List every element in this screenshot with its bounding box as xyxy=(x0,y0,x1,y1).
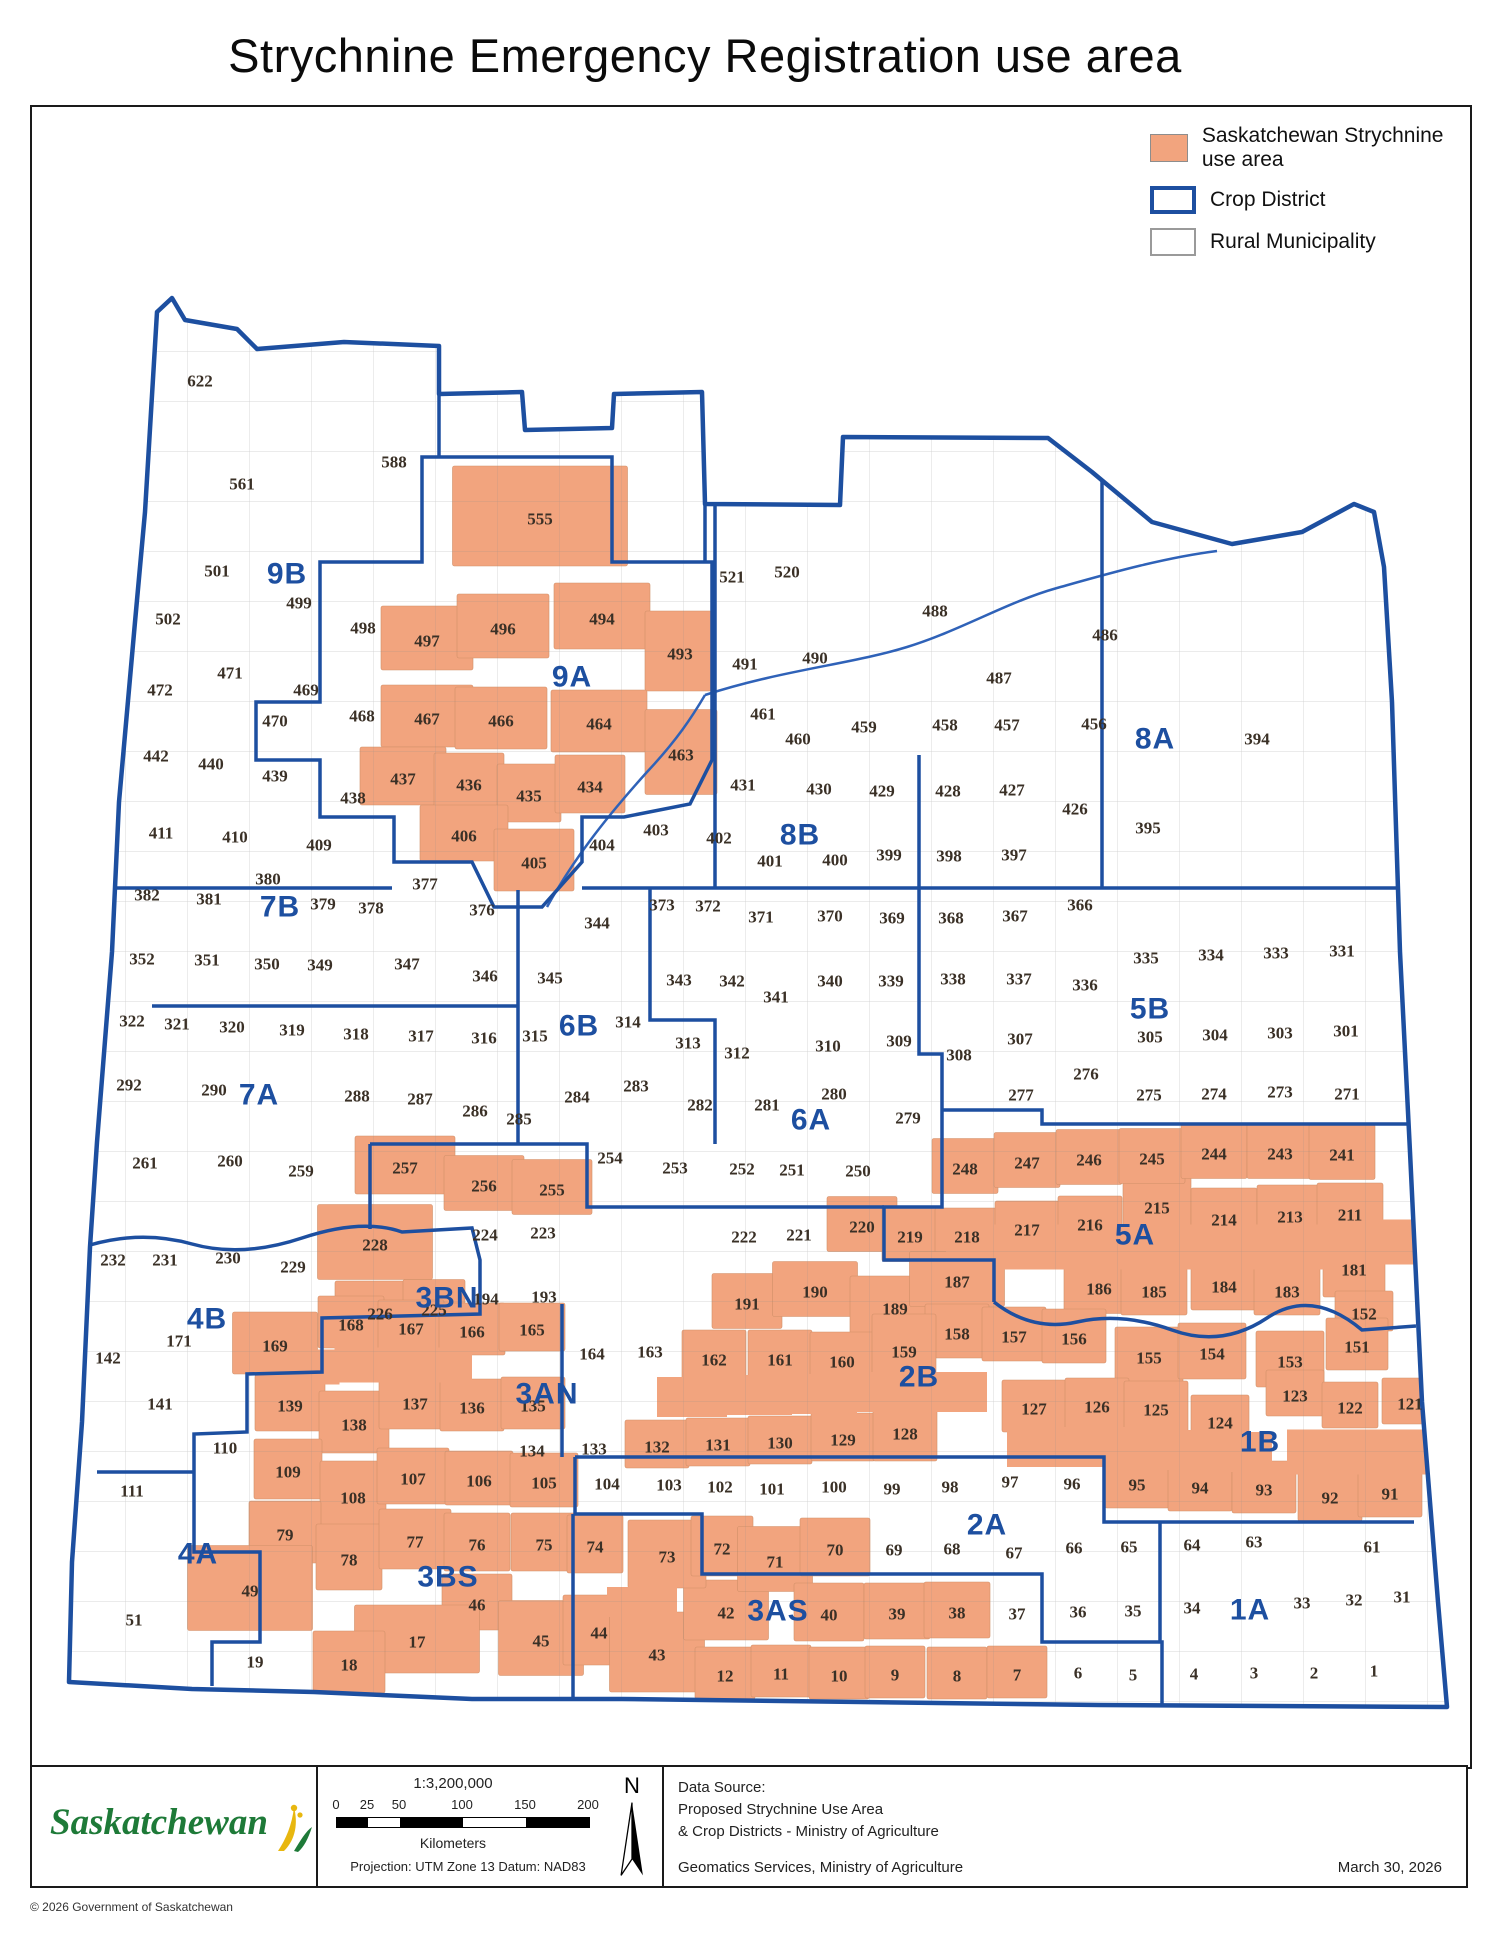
map-frame: 6225885615014995024984724714694704684424… xyxy=(30,105,1472,1769)
rm-label: 430 xyxy=(806,780,832,799)
data-source-text: Data Source: Proposed Strychnine Use Are… xyxy=(678,1777,939,1843)
rm-label: 461 xyxy=(750,705,776,724)
district-label-7a: 7A xyxy=(239,1079,279,1112)
rm-label: 339 xyxy=(878,972,904,991)
rm-label: 303 xyxy=(1267,1024,1293,1043)
rm-label: 331 xyxy=(1329,942,1355,961)
legend-item-crop-district: Crop District xyxy=(1150,186,1470,214)
rm-label: 101 xyxy=(759,1480,785,1499)
rm-label: 379 xyxy=(310,895,336,914)
rm-label: 496 xyxy=(490,620,516,639)
rm-label: 405 xyxy=(521,854,547,873)
rm-label: 377 xyxy=(412,875,438,894)
rm-label: 183 xyxy=(1274,1283,1300,1302)
rm-label: 224 xyxy=(472,1226,498,1245)
rm-label: 215 xyxy=(1144,1199,1170,1218)
rm-label: 313 xyxy=(675,1034,701,1053)
rm-label: 32 xyxy=(1346,1591,1363,1610)
rm-label: 139 xyxy=(277,1397,303,1416)
rm-label: 372 xyxy=(695,897,721,916)
rm-label: 106 xyxy=(466,1472,492,1491)
scale-box: 1:3,200,000 0 25 50 100 150 200 Kilomete… xyxy=(316,1765,664,1888)
rm-label: 163 xyxy=(637,1343,663,1362)
rm-label: 488 xyxy=(922,602,948,621)
rm-label: 305 xyxy=(1137,1028,1163,1047)
rm-label: 498 xyxy=(350,619,376,638)
rm-label: 6 xyxy=(1074,1664,1083,1683)
rm-label: 132 xyxy=(644,1438,670,1457)
rm-label: 341 xyxy=(763,988,789,1007)
rm-label: 256 xyxy=(471,1177,497,1196)
rm-label: 160 xyxy=(829,1353,855,1372)
rm-label: 253 xyxy=(662,1159,688,1178)
rm-label: 252 xyxy=(729,1160,755,1179)
rm-label: 108 xyxy=(340,1489,366,1508)
rm-label: 494 xyxy=(589,610,615,629)
rm-label: 622 xyxy=(187,372,213,391)
rm-label: 231 xyxy=(152,1251,178,1270)
rm-label: 439 xyxy=(262,767,288,786)
district-label-1a: 1A xyxy=(1230,1594,1270,1627)
rm-label: 497 xyxy=(414,632,440,651)
rm-label: 66 xyxy=(1066,1539,1083,1558)
rm-label: 91 xyxy=(1382,1485,1399,1504)
page-title: Strychnine Emergency Registration use ar… xyxy=(80,28,1330,83)
rm-label: 397 xyxy=(1001,846,1027,865)
rm-label: 342 xyxy=(719,972,745,991)
rm-label: 45 xyxy=(533,1632,550,1651)
rm-label: 244 xyxy=(1201,1145,1227,1164)
rm-label: 155 xyxy=(1136,1349,1162,1368)
district-label-2a: 2A xyxy=(967,1509,1007,1542)
rm-label: 123 xyxy=(1282,1387,1308,1406)
district-label-3an: 3AN xyxy=(515,1378,578,1411)
rm-label: 340 xyxy=(817,972,843,991)
district-label-5a: 5A xyxy=(1115,1219,1155,1252)
rm-label: 40 xyxy=(821,1606,838,1625)
rm-label: 190 xyxy=(802,1283,828,1302)
rm-label: 459 xyxy=(851,718,877,737)
rm-label: 394 xyxy=(1244,730,1270,749)
use-area-swatch xyxy=(1150,134,1188,162)
rm-label: 214 xyxy=(1211,1211,1237,1230)
rm-label: 317 xyxy=(408,1027,434,1046)
rm-label: 458 xyxy=(932,716,958,735)
rm-label: 520 xyxy=(774,563,800,582)
rm-label: 36 xyxy=(1070,1603,1087,1622)
legend-item-rural-municipality: Rural Municipality xyxy=(1150,228,1470,256)
rm-label: 217 xyxy=(1014,1221,1040,1240)
rm-label: 468 xyxy=(349,707,375,726)
rm-label: 127 xyxy=(1021,1400,1047,1419)
projection-note: Projection: UTM Zone 13 Datum: NAD83 xyxy=(318,1859,618,1874)
rm-label: 191 xyxy=(734,1295,760,1314)
rm-label: 73 xyxy=(659,1548,676,1567)
rm-label: 243 xyxy=(1267,1145,1293,1164)
rm-label: 381 xyxy=(196,890,222,909)
rm-label: 126 xyxy=(1084,1398,1110,1417)
rm-label: 161 xyxy=(767,1351,793,1370)
rm-label: 275 xyxy=(1136,1086,1162,1105)
rm-label: 95 xyxy=(1129,1476,1146,1495)
rm-label: 122 xyxy=(1337,1399,1363,1418)
rm-label: 493 xyxy=(667,645,693,664)
rm-label: 136 xyxy=(459,1399,485,1418)
rm-label: 216 xyxy=(1077,1216,1103,1235)
district-label-2b: 2B xyxy=(899,1361,939,1394)
rm-label: 457 xyxy=(994,716,1020,735)
rm-label: 337 xyxy=(1006,970,1032,989)
data-source-line: Data Source: xyxy=(678,1777,939,1799)
rm-label: 315 xyxy=(522,1027,548,1046)
rm-label: 142 xyxy=(95,1349,121,1368)
tick-100: 100 xyxy=(451,1797,473,1812)
rm-label: 4 xyxy=(1190,1665,1199,1684)
rm-label: 400 xyxy=(822,851,848,870)
rm-label: 37 xyxy=(1009,1605,1027,1624)
rm-label: 310 xyxy=(815,1037,841,1056)
rm-label: 70 xyxy=(827,1541,844,1560)
rm-label: 152 xyxy=(1351,1305,1377,1324)
rm-label: 435 xyxy=(516,787,542,806)
rm-label: 486 xyxy=(1092,626,1118,645)
rm-label: 181 xyxy=(1341,1261,1367,1280)
district-label-9a: 9A xyxy=(552,661,592,694)
rm-label: 316 xyxy=(471,1029,497,1048)
rm-label: 406 xyxy=(451,827,477,846)
rm-label: 111 xyxy=(120,1482,144,1501)
rm-label: 221 xyxy=(786,1226,812,1245)
credit-text: Geomatics Services, Ministry of Agricult… xyxy=(678,1859,963,1876)
rm-label: 7 xyxy=(1013,1666,1022,1685)
rm-label: 99 xyxy=(884,1480,901,1499)
data-source-line: Proposed Strychnine Use Area xyxy=(678,1799,939,1821)
rm-label: 350 xyxy=(254,955,280,974)
rm-label: 185 xyxy=(1141,1283,1167,1302)
rm-label: 222 xyxy=(731,1228,757,1247)
district-label-9b: 9B xyxy=(267,558,307,591)
rm-label: 367 xyxy=(1002,907,1028,926)
rm-label: 370 xyxy=(817,907,843,926)
map-date: March 30, 2026 xyxy=(1338,1859,1442,1876)
rm-label: 49 xyxy=(242,1582,259,1601)
rm-label: 343 xyxy=(666,971,692,990)
rm-label: 100 xyxy=(821,1478,847,1497)
rm-label: 376 xyxy=(469,901,495,920)
rm-label: 292 xyxy=(116,1076,142,1095)
rm-label: 401 xyxy=(757,852,783,871)
rm-label: 131 xyxy=(705,1436,731,1455)
rm-label: 352 xyxy=(129,950,155,969)
rm-label: 429 xyxy=(869,782,895,801)
rm-label: 110 xyxy=(213,1439,238,1458)
logo-box: Saskatchewan xyxy=(30,1765,318,1888)
rm-label: 346 xyxy=(472,967,498,986)
rm-label: 1 xyxy=(1370,1662,1379,1681)
rm-label: 349 xyxy=(307,956,333,975)
rm-label: 308 xyxy=(946,1046,972,1065)
district-label-3as: 3AS xyxy=(747,1595,808,1628)
rm-label: 399 xyxy=(876,846,902,865)
rm-label: 63 xyxy=(1246,1533,1263,1552)
rm-label: 9 xyxy=(891,1666,900,1685)
rm-label: 428 xyxy=(935,782,961,801)
tick-50: 50 xyxy=(392,1797,406,1812)
district-label-4a: 4A xyxy=(178,1538,218,1571)
rm-label: 304 xyxy=(1202,1026,1228,1045)
rm-label: 491 xyxy=(732,655,758,674)
rm-label: 109 xyxy=(275,1463,301,1482)
rm-label: 404 xyxy=(589,836,615,855)
rm-label: 169 xyxy=(262,1337,288,1356)
rm-label: 51 xyxy=(126,1611,143,1630)
rm-label: 154 xyxy=(1199,1345,1225,1364)
rural-municipality-swatch xyxy=(1150,228,1196,256)
rm-label: 164 xyxy=(579,1345,605,1364)
rm-label: 501 xyxy=(204,562,230,581)
map-sheet: Strychnine Emergency Registration use ar… xyxy=(0,0,1500,1941)
rm-label: 456 xyxy=(1081,715,1107,734)
rm-label: 8 xyxy=(953,1667,962,1686)
rm-label: 351 xyxy=(194,951,220,970)
rm-label: 411 xyxy=(149,824,174,843)
rm-label: 121 xyxy=(1397,1395,1423,1414)
data-source-box: Data Source: Proposed Strychnine Use Are… xyxy=(662,1765,1468,1888)
rm-label: 134 xyxy=(519,1442,545,1461)
rm-label: 320 xyxy=(219,1018,245,1037)
tick-150: 150 xyxy=(514,1797,536,1812)
rm-label: 280 xyxy=(821,1085,847,1104)
rm-label: 79 xyxy=(277,1526,294,1545)
rm-label: 345 xyxy=(537,969,563,988)
rm-label: 409 xyxy=(306,836,332,855)
rm-label: 162 xyxy=(701,1351,727,1370)
rm-label: 125 xyxy=(1143,1401,1169,1420)
logo-wordmark: Saskatchewan xyxy=(50,1801,268,1844)
district-label-3bn: 3BN xyxy=(415,1282,478,1315)
rm-label: 130 xyxy=(767,1434,793,1453)
rm-label: 312 xyxy=(724,1044,750,1063)
rm-label: 230 xyxy=(215,1249,241,1268)
rm-label: 431 xyxy=(730,776,756,795)
district-label-3bs: 3BS xyxy=(417,1561,478,1594)
rm-label: 250 xyxy=(845,1162,871,1181)
rm-label: 67 xyxy=(1006,1544,1024,1563)
rm-label: 344 xyxy=(584,914,610,933)
rm-label: 94 xyxy=(1192,1479,1210,1498)
rm-label: 521 xyxy=(719,568,745,587)
rm-label: 366 xyxy=(1067,896,1093,915)
legend-label: Crop District xyxy=(1210,188,1326,212)
rm-label: 232 xyxy=(100,1251,126,1270)
rm-label: 245 xyxy=(1139,1150,1165,1169)
rm-label: 186 xyxy=(1086,1280,1112,1299)
rm-label: 71 xyxy=(767,1553,784,1572)
rm-label: 74 xyxy=(587,1538,605,1557)
rm-label: 211 xyxy=(1338,1206,1363,1225)
rm-label: 76 xyxy=(469,1536,486,1555)
rm-label: 153 xyxy=(1277,1353,1303,1372)
rm-label: 369 xyxy=(879,909,905,928)
rm-label: 220 xyxy=(849,1218,875,1237)
rm-label: 223 xyxy=(530,1224,556,1243)
rm-label: 382 xyxy=(134,886,160,905)
rm-label: 502 xyxy=(155,610,181,629)
scale-unit: Kilometers xyxy=(318,1835,588,1851)
crop-district-swatch xyxy=(1150,186,1196,214)
rm-label: 3 xyxy=(1250,1664,1259,1683)
saskatchewan-logo: Saskatchewan xyxy=(50,1801,314,1853)
rm-label: 75 xyxy=(536,1536,553,1555)
rm-label: 274 xyxy=(1201,1085,1227,1104)
rm-label: 248 xyxy=(952,1160,978,1179)
rm-label: 442 xyxy=(143,747,169,766)
legend-item-use-area: Saskatchewan Strychnine use area xyxy=(1150,124,1470,172)
rm-label: 31 xyxy=(1394,1588,1411,1607)
rm-label: 371 xyxy=(748,908,774,927)
rm-label: 403 xyxy=(643,821,669,840)
rm-label: 284 xyxy=(564,1088,590,1107)
rm-label: 193 xyxy=(531,1288,557,1307)
rm-label: 271 xyxy=(1334,1085,1360,1104)
rm-label: 167 xyxy=(398,1320,424,1339)
north-arrow-icon xyxy=(617,1799,647,1879)
legend-label: Rural Municipality xyxy=(1210,230,1376,254)
rm-label: 301 xyxy=(1333,1022,1359,1041)
rm-label: 427 xyxy=(999,781,1025,800)
district-label-6a: 6A xyxy=(791,1104,831,1137)
rm-label: 159 xyxy=(891,1343,917,1362)
rm-label: 219 xyxy=(897,1228,923,1247)
rm-label: 72 xyxy=(714,1540,731,1559)
rm-label: 555 xyxy=(527,510,553,529)
rm-label: 129 xyxy=(830,1431,856,1450)
rm-label: 69 xyxy=(886,1541,903,1560)
rm-label: 97 xyxy=(1002,1473,1020,1492)
rm-label: 247 xyxy=(1014,1154,1040,1173)
rm-label: 334 xyxy=(1198,946,1224,965)
rm-label: 34 xyxy=(1184,1599,1202,1618)
rm-label: 260 xyxy=(217,1152,243,1171)
rm-label: 347 xyxy=(394,955,420,974)
rm-label: 380 xyxy=(255,870,281,889)
rm-label: 490 xyxy=(802,649,828,668)
rm-label: 463 xyxy=(668,746,694,765)
rm-label: 96 xyxy=(1064,1475,1081,1494)
rm-label: 43 xyxy=(649,1646,666,1665)
rm-label: 261 xyxy=(132,1154,158,1173)
rm-label: 104 xyxy=(594,1475,620,1494)
rm-label: 10 xyxy=(831,1667,848,1686)
rm-label: 290 xyxy=(201,1081,227,1100)
rm-label: 588 xyxy=(381,453,407,472)
rm-label: 128 xyxy=(892,1425,918,1444)
rm-label: 402 xyxy=(706,829,732,848)
rm-label: 281 xyxy=(754,1096,780,1115)
rm-label: 151 xyxy=(1344,1338,1370,1357)
rm-label: 378 xyxy=(358,899,384,918)
rm-label: 410 xyxy=(222,828,248,847)
legend-label: Saskatchewan Strychnine use area xyxy=(1202,124,1470,172)
rm-label: 103 xyxy=(656,1476,682,1495)
rm-label: 464 xyxy=(586,715,612,734)
rm-label: 158 xyxy=(944,1325,970,1344)
rm-label: 187 xyxy=(944,1273,970,1292)
rm-label: 469 xyxy=(293,681,319,700)
wheat-sheaf-icon xyxy=(272,1801,314,1853)
data-source-line: & Crop Districts - Ministry of Agricultu… xyxy=(678,1821,939,1843)
rm-label: 157 xyxy=(1001,1328,1027,1347)
rm-label: 279 xyxy=(895,1109,921,1128)
district-label-8b: 8B xyxy=(780,819,820,852)
rm-label: 440 xyxy=(198,755,224,774)
rm-label: 467 xyxy=(414,710,440,729)
district-label-7b: 7B xyxy=(260,891,300,924)
rm-label: 287 xyxy=(407,1090,433,1109)
rm-label: 141 xyxy=(147,1395,173,1414)
rm-label: 35 xyxy=(1125,1602,1142,1621)
rm-label: 499 xyxy=(286,594,312,613)
rm-label: 98 xyxy=(942,1478,959,1497)
district-label-5b: 5B xyxy=(1130,993,1170,1026)
rm-label: 61 xyxy=(1364,1538,1381,1557)
rm-label: 438 xyxy=(340,789,366,808)
rm-label: 138 xyxy=(341,1416,367,1435)
rm-label: 44 xyxy=(591,1624,609,1643)
rm-label: 283 xyxy=(623,1077,649,1096)
rm-label: 228 xyxy=(362,1236,388,1255)
rm-label: 107 xyxy=(400,1470,426,1489)
rm-label: 273 xyxy=(1267,1083,1293,1102)
rm-label: 471 xyxy=(217,664,243,683)
legend: Saskatchewan Strychnine use area Crop Di… xyxy=(1150,124,1470,270)
scale-ratio: 1:3,200,000 xyxy=(318,1775,588,1792)
rm-label: 184 xyxy=(1211,1278,1237,1297)
rm-label: 318 xyxy=(343,1025,369,1044)
rm-label: 434 xyxy=(577,778,603,797)
rm-label: 38 xyxy=(949,1604,966,1623)
rm-label: 165 xyxy=(519,1321,545,1340)
tick-200: 200 xyxy=(577,1797,599,1812)
rm-label: 309 xyxy=(886,1032,912,1051)
rm-label: 46 xyxy=(469,1596,486,1615)
rm-label: 166 xyxy=(459,1323,485,1342)
saskatchewan-map: 6225885615014995024984724714694704684424… xyxy=(32,107,1470,1767)
rm-label: 78 xyxy=(341,1551,358,1570)
rm-label: 105 xyxy=(531,1474,557,1493)
rm-label: 133 xyxy=(581,1440,607,1459)
rm-label: 436 xyxy=(456,776,482,795)
north-label: N xyxy=(610,1773,654,1799)
district-label-1b: 1B xyxy=(1240,1426,1280,1459)
rm-label: 255 xyxy=(539,1181,565,1200)
rm-label: 282 xyxy=(687,1096,713,1115)
rm-label: 92 xyxy=(1322,1489,1339,1508)
rm-label: 276 xyxy=(1073,1065,1099,1084)
rm-label: 68 xyxy=(944,1540,961,1559)
rm-label: 322 xyxy=(119,1012,145,1031)
rm-label: 460 xyxy=(785,730,811,749)
rm-label: 314 xyxy=(615,1013,641,1032)
rm-label: 18 xyxy=(341,1656,358,1675)
rm-grid-texture xyxy=(32,107,1470,1767)
rm-label: 336 xyxy=(1072,976,1098,995)
rm-label: 229 xyxy=(280,1258,306,1277)
rm-label: 137 xyxy=(402,1395,428,1414)
rm-label: 335 xyxy=(1133,949,1159,968)
rm-label: 241 xyxy=(1329,1146,1355,1165)
rm-label: 168 xyxy=(338,1316,364,1335)
